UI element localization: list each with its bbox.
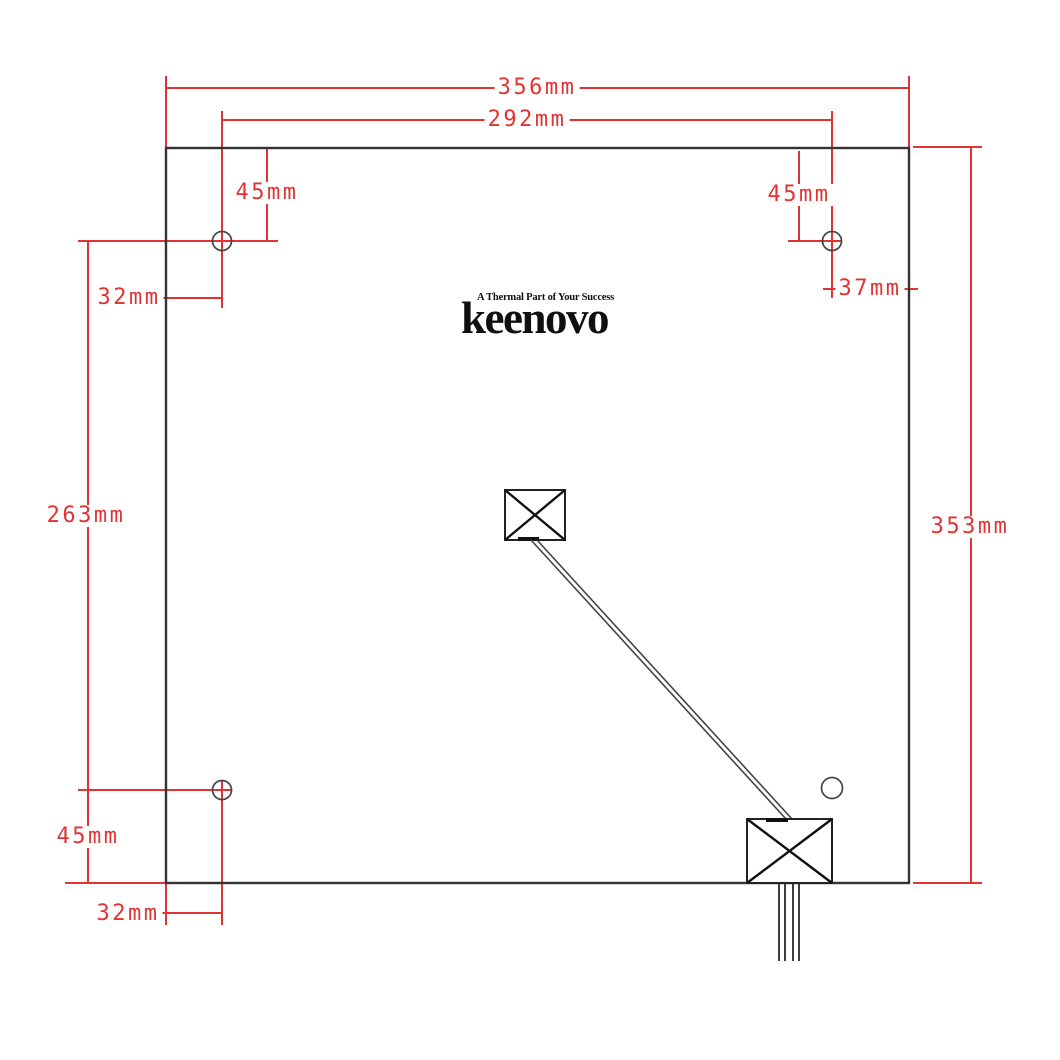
thermistor-lead-line-2 — [537, 540, 792, 819]
logo-brand-wordmark: keenovo — [461, 302, 614, 334]
dim-label-overall-height: 353mm — [928, 516, 1013, 538]
dim-label-bottom-left-hole-x: 32mm — [94, 903, 163, 925]
dim-label-hole-span-height: 263mm — [44, 505, 129, 527]
mounting-hole-bottom-right — [822, 778, 843, 799]
junction-box — [747, 819, 832, 883]
dim-label-top-left-hole-y: 45mm — [233, 182, 302, 204]
heater-pad-outline — [166, 148, 909, 883]
thermistor-lead-line-1 — [531, 540, 786, 819]
dim-label-hole-span-width: 292mm — [485, 109, 570, 131]
dim-label-top-left-hole-x: 32mm — [95, 287, 164, 309]
heater-dimensional-drawing: 356mm 292mm 45mm 45mm 32mm 37mm 263mm 35… — [0, 0, 1060, 1060]
thermistor-box — [505, 490, 565, 540]
dim-label-bottom-left-hole-y: 45mm — [54, 826, 123, 848]
keenovo-logo: A Thermal Part of Your Success keenovo — [461, 293, 614, 334]
dim-label-top-right-hole-x: 37mm — [836, 278, 905, 300]
dim-label-top-right-hole-y: 45mm — [765, 184, 834, 206]
dim-label-overall-width: 356mm — [495, 77, 580, 99]
